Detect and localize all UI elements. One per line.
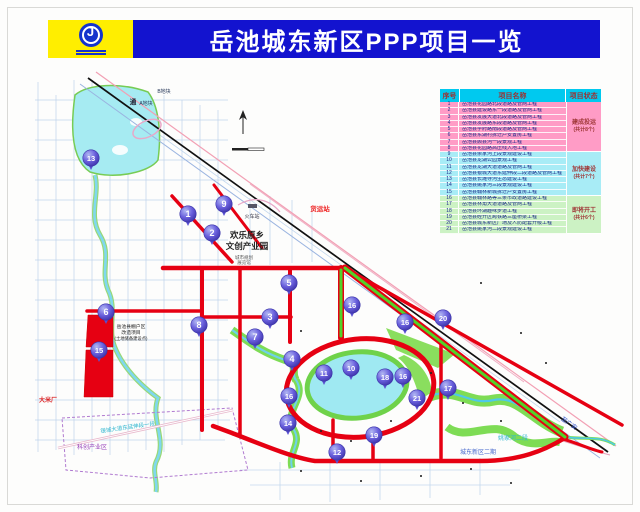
project-name: 岳池县发展大道北段道路及管网工程 — [459, 115, 566, 120]
logo-caption-lines — [76, 49, 106, 56]
marker-number: 10 — [347, 364, 355, 373]
map-label: 展览馆 — [237, 259, 251, 266]
project-name: 岳池县发展路东段道路及管网工程 — [459, 121, 566, 126]
marker-number: 12 — [333, 448, 341, 457]
col-header-status: 项目状态 — [566, 89, 601, 102]
project-name: 岳池县城东新区广场及人防配套升级工程 — [459, 221, 566, 226]
map-label: 货运站 — [309, 204, 330, 213]
logo-box — [48, 20, 133, 58]
marker-number: 16 — [285, 392, 293, 401]
header-bar: 岳池城东新区PPP项目一览 — [48, 20, 600, 58]
row-number: 14 — [440, 183, 459, 188]
scale-bar — [232, 148, 264, 151]
marker-number: 4 — [289, 354, 294, 364]
project-name: 岳池县姚家河三段景观建设工程 — [459, 183, 566, 188]
project-marker-3[interactable]: 3 — [262, 309, 278, 329]
marker-number: 9 — [221, 199, 226, 209]
marker-number: 16 — [348, 301, 356, 310]
col-header-name: 项目名称 — [460, 89, 566, 102]
project-marker-16[interactable]: 16 — [344, 297, 360, 317]
project-name: 岳池县银城大道东延伸段二段道路及管网工程 — [459, 171, 566, 176]
marker-number: 16 — [401, 318, 409, 327]
project-table[interactable]: 序号 项目名称 项目状态 1岳池县花园路北段道路及管网工程2岳池县建设路东一段道… — [440, 89, 601, 234]
row-number: 18 — [440, 209, 459, 214]
compass-icon — [239, 110, 247, 134]
project-name: 岳池县余家河上段景观建设工程 — [459, 152, 566, 157]
marker-number: 15 — [95, 346, 103, 355]
page-title: 岳池城东新区PPP项目一览 — [209, 22, 523, 57]
project-marker-16[interactable]: 16 — [397, 314, 413, 334]
marker-number: 17 — [444, 384, 452, 393]
map-label: 姚家河二段 — [498, 434, 528, 442]
row-number: 17 — [440, 202, 459, 207]
map-label: 科创产业区 — [77, 443, 107, 451]
marker-number: 14 — [284, 419, 293, 428]
project-name: 岳池县姚家河二段景观建设工程 — [459, 227, 566, 232]
road-centerline — [58, 410, 233, 448]
project-marker-5[interactable]: 5 — [281, 275, 297, 295]
status-cell: 建成投运(共计8个) — [567, 102, 601, 152]
project-name: 岳池县龙湖公园景观工程 — [459, 158, 566, 163]
project-marker-19[interactable]: 19 — [366, 427, 382, 447]
project-map[interactable]: 欢乐原乡文创产业园货运站火车站城市规划展览馆岳池县棚户区改造项目(土地储备建设点… — [0, 0, 640, 512]
marker-number: 1 — [185, 209, 190, 219]
marker-number: 7 — [252, 332, 257, 342]
project-name: 岳池县翰林新城拆迁户安置房工程 — [459, 190, 566, 195]
project-name: 岳池县龙湖大道道路及管网工程 — [459, 165, 566, 170]
project-marker-8[interactable]: 8 — [191, 317, 207, 337]
status-cell: 即将开工(共计6个) — [567, 196, 601, 234]
map-label: B地块 — [157, 88, 170, 95]
table-row[interactable]: 21岳池县姚家河二段景观建设工程 — [440, 227, 566, 233]
map-label: 通 — [130, 97, 137, 106]
project-name: 岳池县建设路东一段道路及管网工程 — [459, 108, 566, 113]
row-number: 6 — [440, 133, 459, 138]
marker-number: 3 — [267, 312, 272, 322]
map-label: 火车站 — [244, 213, 259, 220]
marker-number: 18 — [381, 373, 389, 382]
table-rows: 1岳池县花园路北段道路及管网工程2岳池县建设路东一段道路及管网工程3岳池县发展大… — [440, 102, 566, 234]
map-label: 欢乐原乡 — [229, 230, 264, 240]
lake-island — [112, 145, 128, 155]
project-name: 岳池县翰林路等三条市政道路建设工程 — [459, 196, 566, 201]
marker-number: 6 — [103, 307, 108, 317]
central-lake — [304, 347, 410, 423]
map-label: (土地储备建设点) — [115, 335, 149, 342]
status-cell: 加快建设(共计7个) — [567, 152, 601, 196]
project-name: 岳池县经开区跨铁路三座桥梁工程 — [459, 215, 566, 220]
project-name: 岳池县东湖村拆迁户安置房工程 — [459, 133, 566, 138]
map-label: 岳池县棚户区 — [117, 323, 146, 330]
marker-number: 20 — [439, 314, 447, 323]
marker-number: 5 — [286, 278, 291, 288]
map-label: 大米厂 — [39, 396, 57, 404]
row-number: 21 — [440, 227, 459, 232]
marker-number: 21 — [413, 394, 421, 403]
marker-number: 8 — [196, 320, 201, 330]
row-number: 3 — [440, 115, 459, 120]
marker-number: 2 — [209, 228, 214, 238]
marker-number: 13 — [87, 154, 95, 163]
marker-number: 19 — [370, 431, 378, 440]
row-number: 10 — [440, 158, 459, 163]
project-name: 岳池县顾县河一段景观工程 — [459, 140, 566, 145]
map-label: 城东新区二期 — [460, 448, 496, 456]
table-header-row: 序号 项目名称 项目状态 — [440, 89, 601, 102]
row-number: 2 — [440, 108, 459, 113]
project-name: 岳池县林角大道道路及管网工程 — [459, 202, 566, 207]
project-name: 岳池县环湖趣味步道工程 — [459, 209, 566, 214]
map-label: 改造项目 — [121, 329, 140, 336]
marker-number: 16 — [399, 372, 407, 381]
map-label: A地块 — [139, 100, 152, 107]
huaxi-logo-icon — [79, 23, 103, 47]
train-station-building — [248, 204, 257, 208]
project-name: 岳池县花园路高压线入地工程 — [459, 146, 566, 151]
map-label: 文创产业园 — [226, 241, 269, 251]
project-name: 岳池县长滩寺河生态建设工程 — [459, 177, 566, 182]
marker-number: 11 — [320, 369, 328, 378]
project-name: 岳池县学府路南段道路及管网工程 — [459, 127, 566, 132]
title-bar: 岳池城东新区PPP项目一览 — [133, 20, 600, 58]
project-name: 岳池县花园路北段道路及管网工程 — [459, 102, 566, 107]
